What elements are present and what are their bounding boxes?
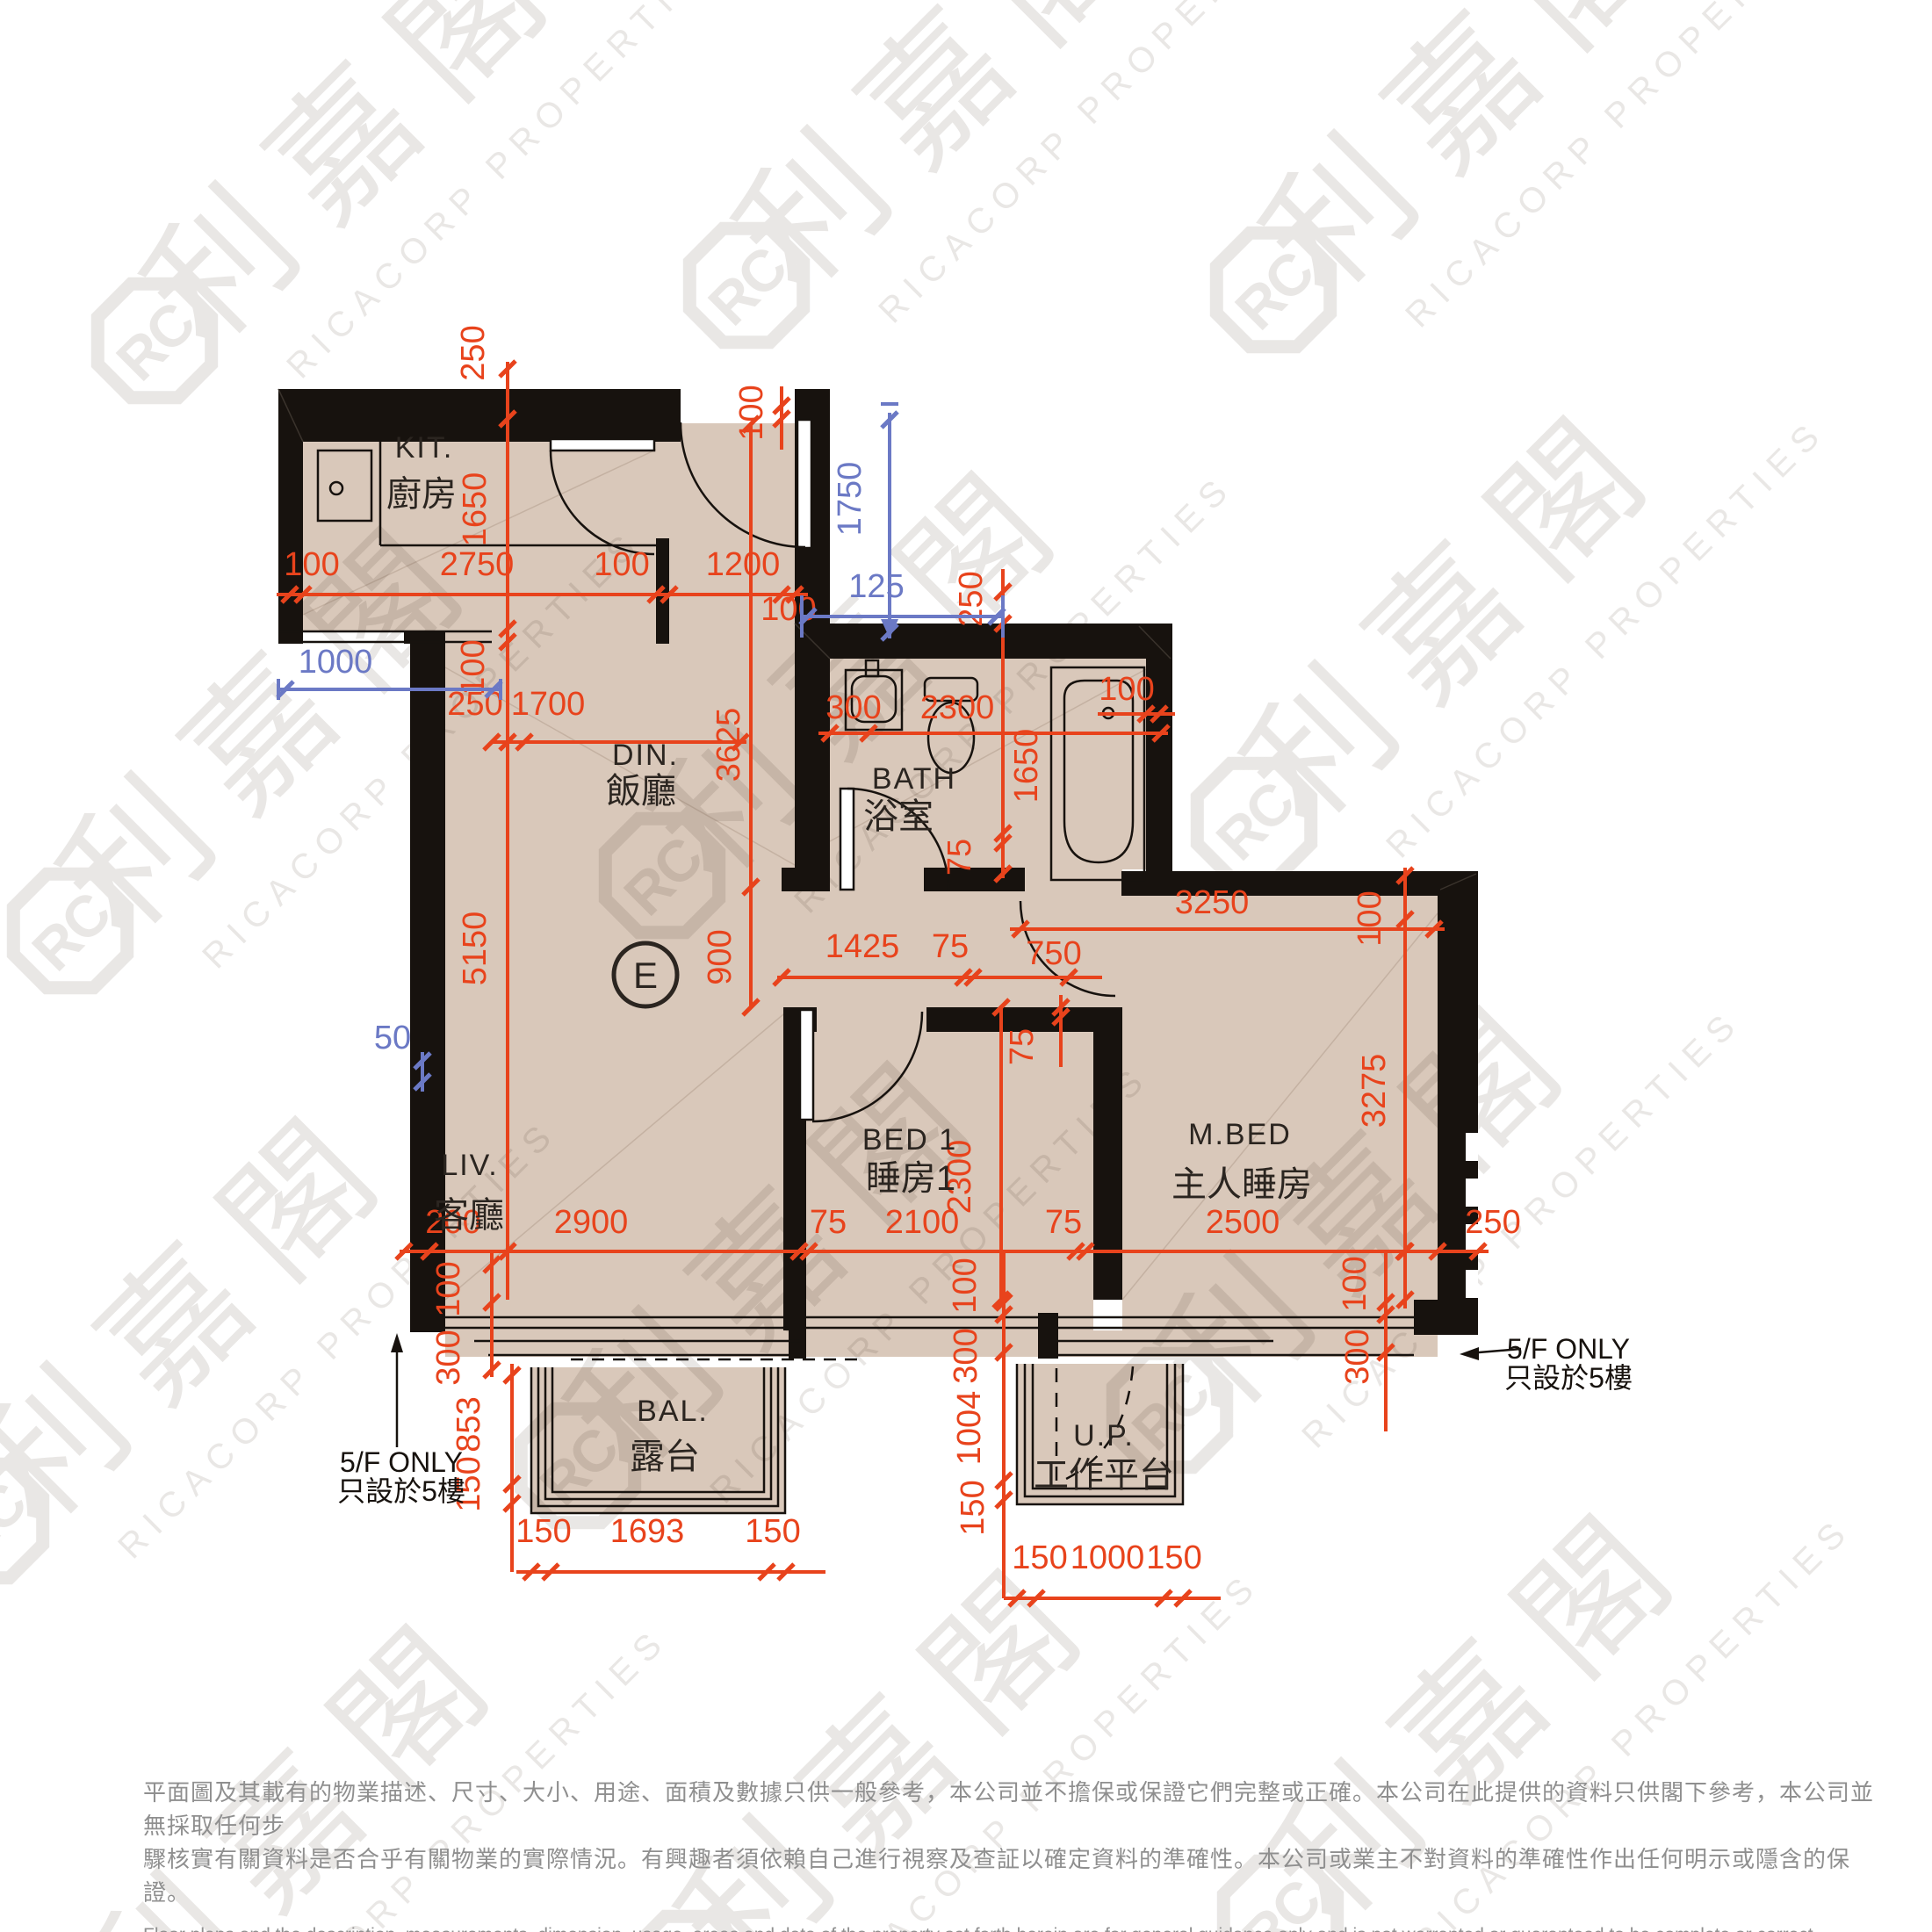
dimension-label: 2500 bbox=[1206, 1204, 1280, 1241]
entrance-door-leaf bbox=[797, 420, 811, 548]
dimension-label: 150 bbox=[515, 1513, 571, 1550]
bed1-door-leaf bbox=[800, 1010, 813, 1120]
dimension-label: 100 bbox=[733, 385, 770, 440]
dimension-label: 250 bbox=[1465, 1204, 1520, 1241]
dimension-label: 100 bbox=[761, 591, 816, 628]
dimension-label: 100 bbox=[947, 1258, 984, 1313]
dimension-label: 125 bbox=[848, 568, 904, 605]
dimension-label: 3250 bbox=[1175, 884, 1250, 921]
dimension-label: 300 bbox=[948, 1328, 984, 1383]
dimension-label: 150 bbox=[1146, 1539, 1201, 1576]
dimension-label: 853 bbox=[451, 1396, 487, 1452]
dimension-label: 2100 bbox=[885, 1204, 960, 1241]
room-label-liv-zh: 客廳 bbox=[434, 1196, 504, 1235]
dimension-label: 2300 bbox=[920, 689, 995, 726]
dimension-label: 1750 bbox=[832, 462, 869, 537]
wall bbox=[1414, 1300, 1478, 1335]
dimension-label: 1000 bbox=[1071, 1539, 1145, 1576]
dimension-label: 75 bbox=[941, 839, 978, 876]
watermark bbox=[1155, 281, 1834, 960]
dimension-label: 100 bbox=[284, 546, 339, 583]
wall bbox=[782, 868, 830, 891]
wall bbox=[789, 1300, 806, 1359]
kitchen-door-leaf bbox=[551, 439, 654, 451]
note-left-arrow-head bbox=[391, 1333, 403, 1352]
dimension-label: 75 bbox=[810, 1204, 847, 1241]
watermark bbox=[1174, 0, 1853, 429]
dimension-label: 2900 bbox=[554, 1204, 629, 1241]
wall-notch bbox=[1466, 1133, 1478, 1161]
wall bbox=[1093, 1007, 1122, 1300]
wall bbox=[1038, 1313, 1058, 1359]
room-label-up-en: U.P. bbox=[1073, 1419, 1135, 1453]
dimension-label: 1000 bbox=[299, 644, 373, 681]
room-label-liv-en: LIV. bbox=[441, 1149, 498, 1182]
dimension-label: 50 bbox=[374, 1020, 411, 1056]
dimension-label: 100 bbox=[594, 546, 649, 583]
room-label-kit-zh: 廚房 bbox=[386, 475, 457, 514]
dimension-label: 250 bbox=[953, 571, 990, 626]
floor-plan-canvas: RC利嘉閣RICACORP PROPERTIES2501650100275010… bbox=[0, 0, 1932, 1932]
dimension-label: 1200 bbox=[706, 546, 781, 583]
dimension-label: 75 bbox=[1004, 1028, 1041, 1065]
note-right-zh: 只設於5樓 bbox=[1504, 1362, 1633, 1394]
dimension-label: 150 bbox=[745, 1513, 800, 1550]
wall bbox=[795, 624, 1172, 659]
wall bbox=[278, 389, 303, 644]
dimension-label: 300 bbox=[825, 689, 881, 726]
dimension-label: 75 bbox=[1045, 1204, 1082, 1241]
dimension-label: 100 bbox=[1352, 890, 1388, 946]
note-left-zh: 只設於5樓 bbox=[337, 1475, 465, 1507]
dimension-label: 300 bbox=[1339, 1329, 1376, 1384]
room-label-bath-zh: 浴室 bbox=[863, 797, 934, 836]
wall-notch bbox=[1466, 1270, 1478, 1298]
room-label-bed1-zh: 睡房1 bbox=[866, 1159, 955, 1198]
dimension-label: 1650 bbox=[1008, 729, 1045, 804]
wall-notch bbox=[1466, 1179, 1478, 1207]
disclaimer-block: 平面圖及其載有的物業描述、尺寸、大小、用途、面積及數據只供一般參考，本公司並不擔… bbox=[143, 1776, 1891, 1932]
room-label-din-en: DIN. bbox=[612, 739, 679, 772]
dimension-label: 300 bbox=[430, 1330, 467, 1385]
dimension-label: 100 bbox=[1337, 1256, 1373, 1311]
unit-badge-letter: E bbox=[633, 955, 658, 996]
wall bbox=[278, 389, 681, 442]
dimension-label: 100 bbox=[1099, 671, 1154, 708]
room-label-up-zh: 工作平台 bbox=[1034, 1456, 1174, 1495]
bath-door-leaf bbox=[840, 789, 854, 890]
watermark bbox=[647, 0, 1326, 424]
room-label-din-zh: 飯廳 bbox=[606, 772, 676, 811]
dimension-label: 1004 bbox=[951, 1391, 988, 1466]
dimension-label: 1700 bbox=[511, 686, 586, 723]
dimension-label: 1650 bbox=[457, 472, 494, 547]
dimension-label: 1693 bbox=[610, 1513, 685, 1550]
dimension-label: 900 bbox=[702, 929, 739, 984]
disclaimer-zh-line: 平面圖及其載有的物業描述、尺寸、大小、用途、面積及數據只供一般參考，本公司並不擔… bbox=[143, 1776, 1891, 1842]
dimension-label: 3275 bbox=[1356, 1054, 1393, 1128]
disclaimer-zh-line: 驟核實有關資料是否合乎有關物業的實際情況。有興趣者須依賴自己進行視察及查証以確定… bbox=[143, 1842, 1891, 1909]
dimension-label: 75 bbox=[932, 928, 969, 965]
disclaimer-en-line: Floor plans and the description, measure… bbox=[143, 1921, 1891, 1932]
room-label-kit-en: KIT. bbox=[395, 431, 454, 465]
room-label-bath-en: BATH bbox=[872, 762, 956, 796]
dimension-label: 150 bbox=[955, 1480, 991, 1535]
floor-plan-page: RC利嘉閣RICACORP PROPERTIES2501650100275010… bbox=[0, 0, 1932, 1932]
dimension-label: 100 bbox=[430, 1261, 467, 1316]
note-right-arrow-head bbox=[1460, 1347, 1479, 1360]
room-label-bed1-en: BED 1 bbox=[862, 1123, 957, 1157]
wall bbox=[1438, 871, 1478, 1335]
dimension-label: 3625 bbox=[710, 708, 747, 782]
dimension-label: 250 bbox=[455, 325, 492, 380]
note-left-en: 5/F ONLY bbox=[340, 1446, 463, 1478]
room-label-mbed-en: M.BED bbox=[1188, 1118, 1292, 1151]
room-label-bal-en: BAL. bbox=[637, 1395, 709, 1428]
dimension-label: 1425 bbox=[825, 928, 900, 965]
room-label-bal-zh: 露台 bbox=[630, 1438, 700, 1476]
dimension-label: 150 bbox=[1012, 1539, 1067, 1576]
dimension-label: 5150 bbox=[457, 912, 494, 986]
dimension-label: 750 bbox=[1026, 935, 1081, 972]
note-right-en: 5/F ONLY bbox=[1507, 1333, 1630, 1365]
dimension-label: 2750 bbox=[440, 546, 515, 583]
room-label-mbed-zh: 主人睡房 bbox=[1171, 1165, 1312, 1204]
